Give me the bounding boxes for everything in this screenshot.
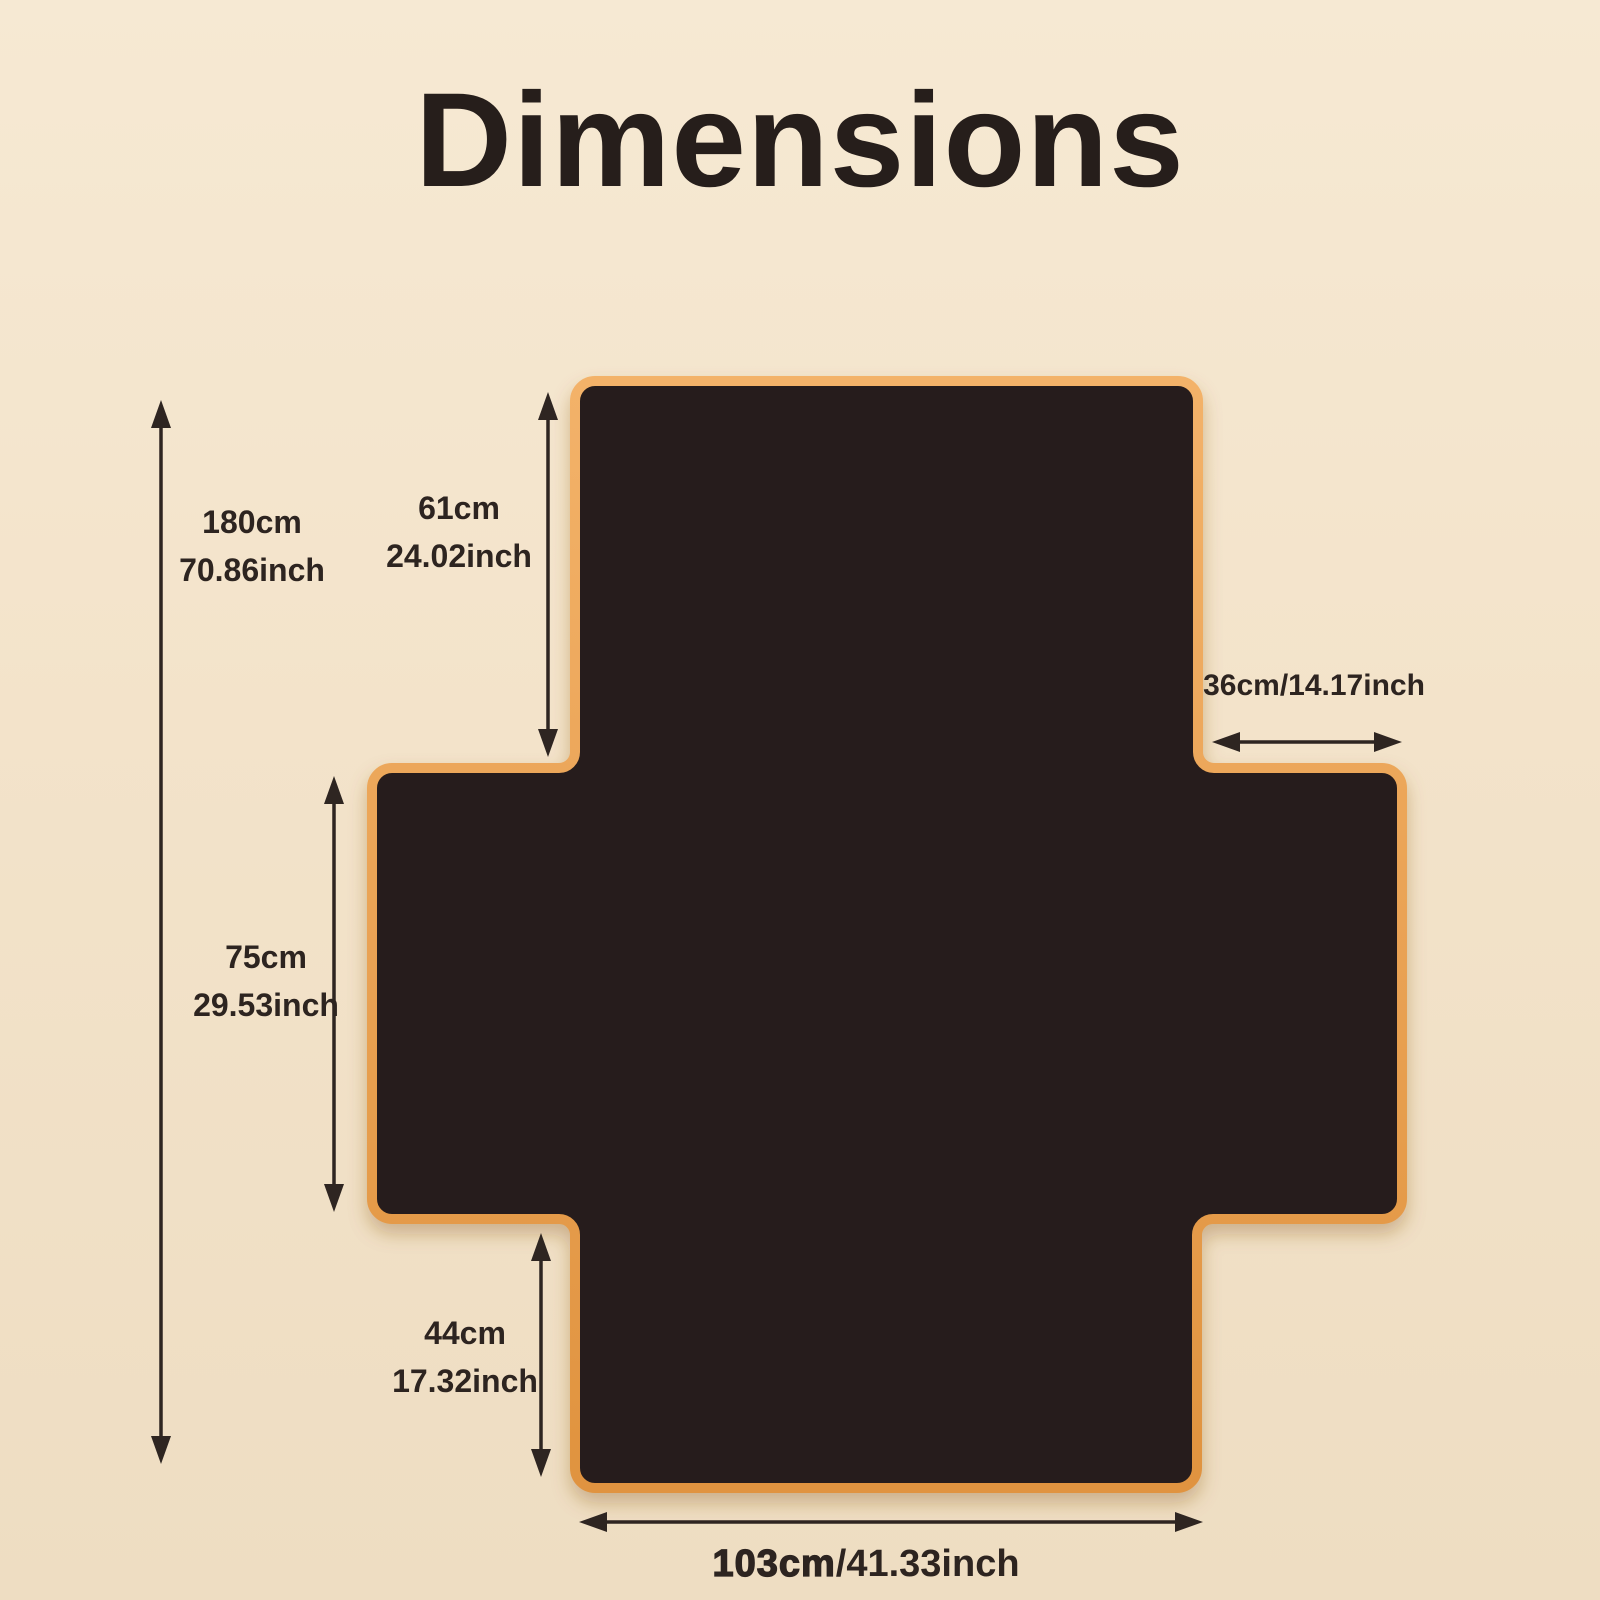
- bottom-width-label: 103cm/41.33inch: [656, 1541, 1076, 1587]
- bottom-height-cm: 44cm: [365, 1309, 565, 1357]
- top-height-cm: 61cm: [359, 484, 559, 532]
- bottom-width-inch: /41.33inch: [836, 1543, 1020, 1585]
- bottom-width-cm: 103cm: [712, 1543, 835, 1585]
- total-height-inch: 70.86inch: [152, 546, 352, 594]
- page-title: Dimensions: [0, 64, 1600, 217]
- total-height-cm: 180cm: [152, 498, 352, 546]
- top-height-label: 61cm 24.02inch: [359, 484, 559, 580]
- right-arm-width-arrow: [1212, 732, 1402, 752]
- bottom-height-inch: 17.32inch: [365, 1357, 565, 1405]
- middle-height-label: 75cm 29.53inch: [166, 933, 366, 1029]
- middle-height-cm: 75cm: [166, 933, 366, 981]
- dimensions-diagram-page: Dimensions 180cm 70.86inch 61cm 24.02inc…: [0, 0, 1600, 1600]
- bottom-width-arrow: [579, 1512, 1203, 1532]
- bottom-height-label: 44cm 17.32inch: [365, 1309, 565, 1405]
- mat-diagram-svg: [0, 0, 1600, 1600]
- total-height-label: 180cm 70.86inch: [152, 498, 352, 594]
- middle-height-inch: 29.53inch: [166, 981, 366, 1029]
- right-arm-width-label: 36cm/14.17inch: [1154, 668, 1474, 704]
- top-height-inch: 24.02inch: [359, 532, 559, 580]
